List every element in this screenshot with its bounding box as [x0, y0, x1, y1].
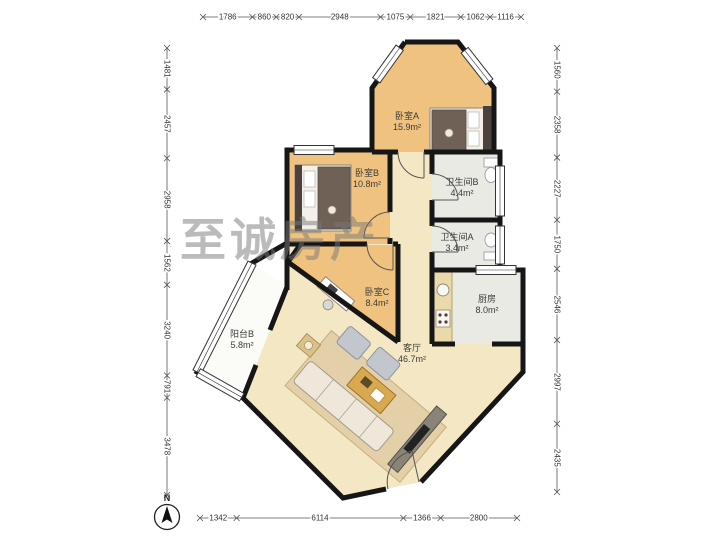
dimension-label: 2435 [553, 449, 562, 467]
dimension-label: 1562 [163, 254, 172, 272]
dimension-label: 1366 [413, 514, 431, 523]
dimension-label: 1342 [209, 514, 227, 523]
dimension-label: 1062 [467, 13, 485, 22]
dimension-lines-layer: 1786860820294810751821106211161342611413… [0, 0, 720, 540]
compass-north-label: N [164, 493, 171, 503]
dimension-label: 2997 [553, 373, 562, 391]
dimension-label: 1560 [553, 61, 562, 79]
dimension-label: 2457 [163, 115, 172, 133]
dimension-label: 1481 [163, 60, 172, 78]
dimension-label: 2546 [553, 296, 562, 314]
floor-plan-page: 1786860820294810751821106211161342611413… [0, 0, 720, 540]
dimension-label: 791 [163, 380, 172, 394]
dimension-label: 1075 [387, 13, 405, 22]
dimension-label: 1116 [497, 13, 514, 22]
dimension-label: 2948 [331, 13, 349, 22]
dimension-label: 820 [281, 13, 295, 22]
dimension-label: 2227 [553, 180, 562, 198]
dimension-label: 2958 [163, 191, 172, 209]
dimension-label: 1821 [427, 13, 445, 22]
dimension-label: 1750 [553, 235, 562, 253]
dimension-label: 2358 [553, 116, 562, 134]
dimension-label: 3240 [163, 321, 172, 339]
dimension-label: 3478 [163, 437, 172, 455]
dimension-label: 860 [258, 13, 272, 22]
dimension-label: 2800 [470, 514, 488, 523]
dimension-label: 6114 [311, 514, 329, 523]
dimension-label: 1786 [219, 13, 237, 22]
